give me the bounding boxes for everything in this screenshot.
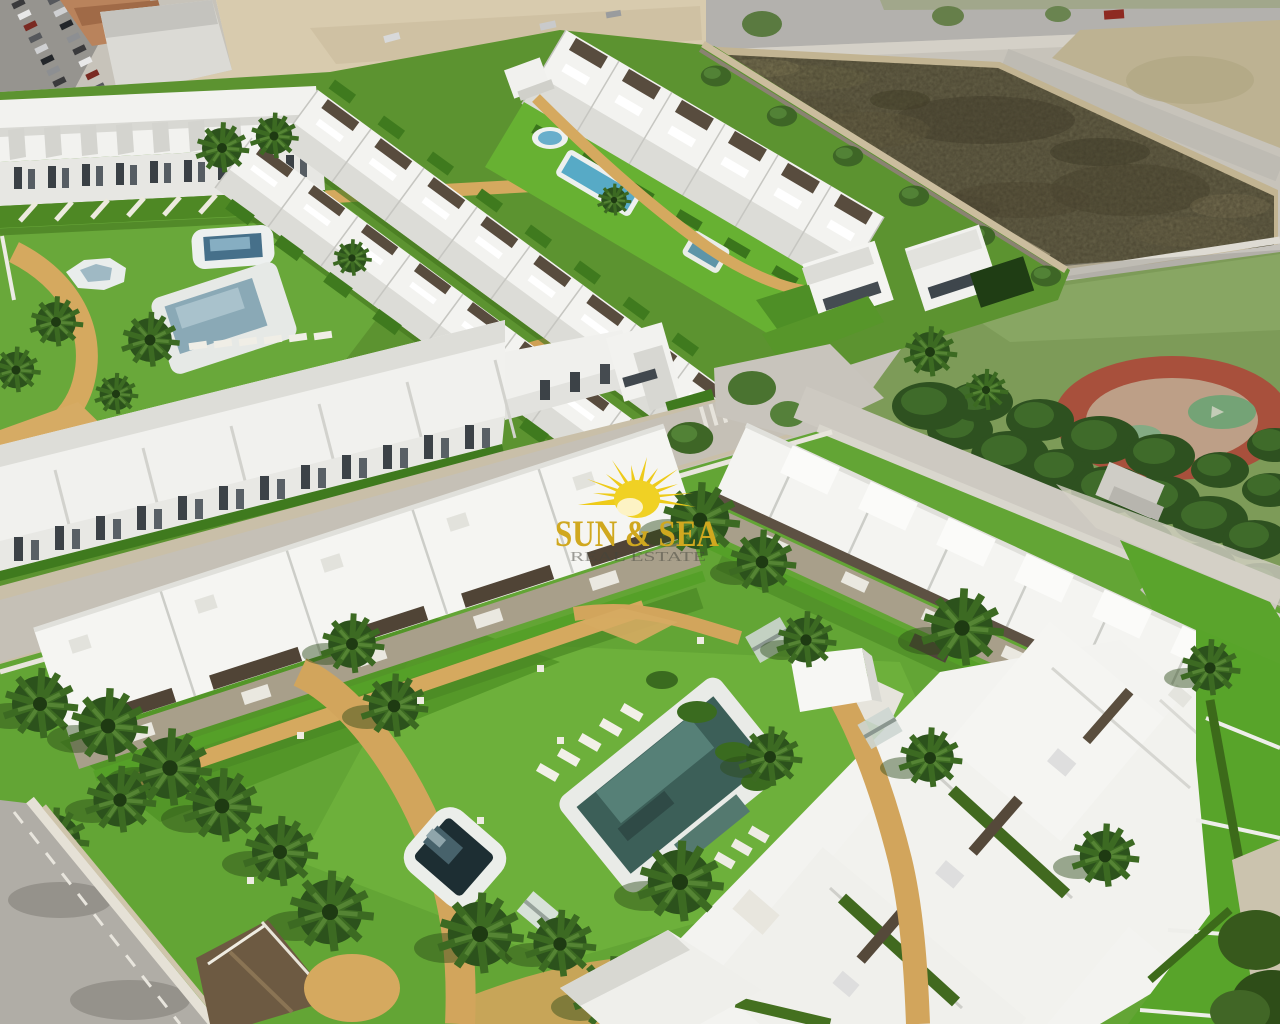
svg-text:REAL ESTATE: REAL ESTATE (570, 550, 706, 565)
svg-text:SUN & SEA: SUN & SEA (555, 514, 719, 555)
